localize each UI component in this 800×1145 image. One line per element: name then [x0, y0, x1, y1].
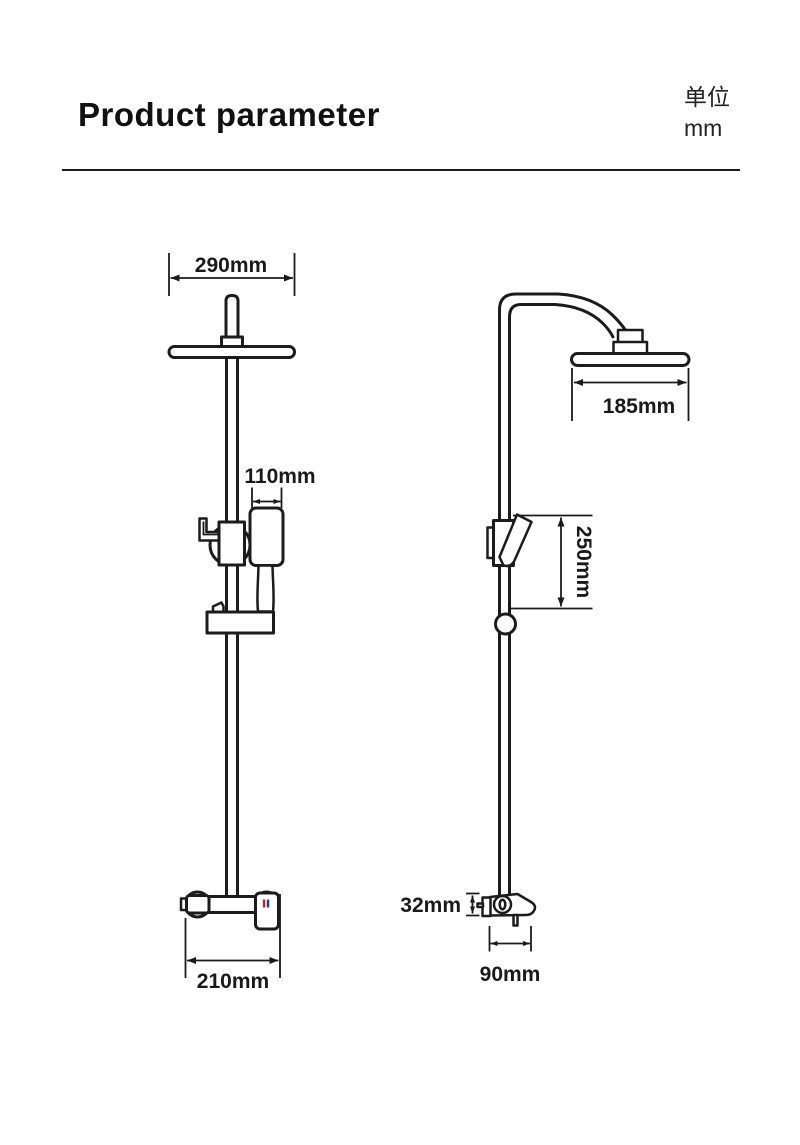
- cold-indicator: [267, 900, 269, 908]
- dim-210-label: 210mm: [197, 970, 269, 993]
- rain-head-front: [169, 347, 295, 358]
- dim-250-label: 250mm: [572, 526, 595, 598]
- dim-110: 110mm: [244, 465, 315, 508]
- handshower-handle-front: [257, 566, 273, 612]
- product-parameter-page: Product parameter 单位 mm: [0, 0, 800, 1145]
- valve-left-cap-front: [187, 896, 210, 914]
- valve-cap-oval-side: [500, 900, 506, 910]
- dim-110-label: 110mm: [244, 465, 315, 488]
- wall-stub-side: [478, 904, 484, 908]
- dim-290-label: 290mm: [195, 254, 267, 277]
- front-view: 290mm 110mm 210mm: [169, 253, 316, 993]
- soap-shelf-front: [207, 612, 274, 633]
- rain-head-side: [572, 354, 690, 366]
- mixer-handle-front: [256, 893, 279, 929]
- dim-290: 290mm: [169, 253, 295, 296]
- dim-90: 90mm: [480, 926, 541, 986]
- dim-185: 185mm: [572, 368, 689, 421]
- head-connector-upper-side: [618, 330, 643, 343]
- diverter-pin-side: [514, 915, 518, 926]
- dim-90-label: 90mm: [480, 963, 541, 986]
- dim-32-label: 32mm: [400, 894, 461, 917]
- shower-system-diagram: 290mm 110mm 210mm: [0, 0, 800, 1145]
- dim-32: 32mm: [400, 894, 479, 918]
- side-view: 185mm 250mm 32mm 90mm: [400, 294, 689, 986]
- hot-indicator: [263, 900, 265, 908]
- head-connector-lower-side: [614, 342, 648, 354]
- handshower-head-front: [250, 508, 283, 566]
- dim-90-extension-lines: [490, 926, 532, 952]
- dim-185-label: 185mm: [603, 395, 675, 418]
- dim-110-extension-lines: [252, 488, 282, 509]
- rail-knob-side: [496, 614, 516, 634]
- riser-pipe-and-arm-outer-side: [500, 294, 629, 896]
- slider-block-front: [219, 522, 245, 565]
- head-stub-pipe-front: [226, 296, 238, 340]
